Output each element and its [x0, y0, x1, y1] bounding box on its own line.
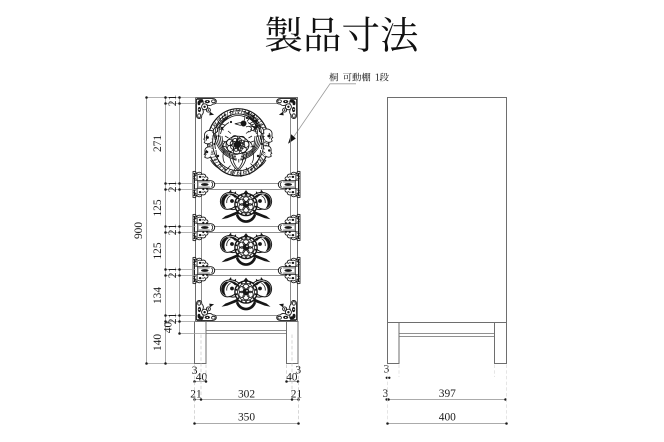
svg-text:140: 140: [152, 334, 164, 351]
svg-text:21: 21: [167, 95, 179, 107]
svg-text:21: 21: [167, 224, 179, 236]
svg-text:400: 400: [439, 411, 456, 423]
svg-text:271: 271: [152, 135, 164, 152]
svg-text:125: 125: [152, 199, 164, 216]
svg-text:302: 302: [238, 388, 255, 400]
svg-text:134: 134: [152, 287, 164, 304]
svg-text:125: 125: [152, 242, 164, 259]
svg-text:21: 21: [167, 181, 179, 193]
svg-text:21: 21: [190, 388, 202, 400]
svg-text:40: 40: [163, 322, 175, 334]
svg-text:21: 21: [167, 267, 179, 279]
svg-text:900: 900: [133, 222, 145, 239]
svg-text:350: 350: [238, 411, 255, 423]
svg-text:3: 3: [384, 364, 390, 376]
svg-text:397: 397: [439, 388, 456, 400]
svg-text:21: 21: [291, 388, 303, 400]
